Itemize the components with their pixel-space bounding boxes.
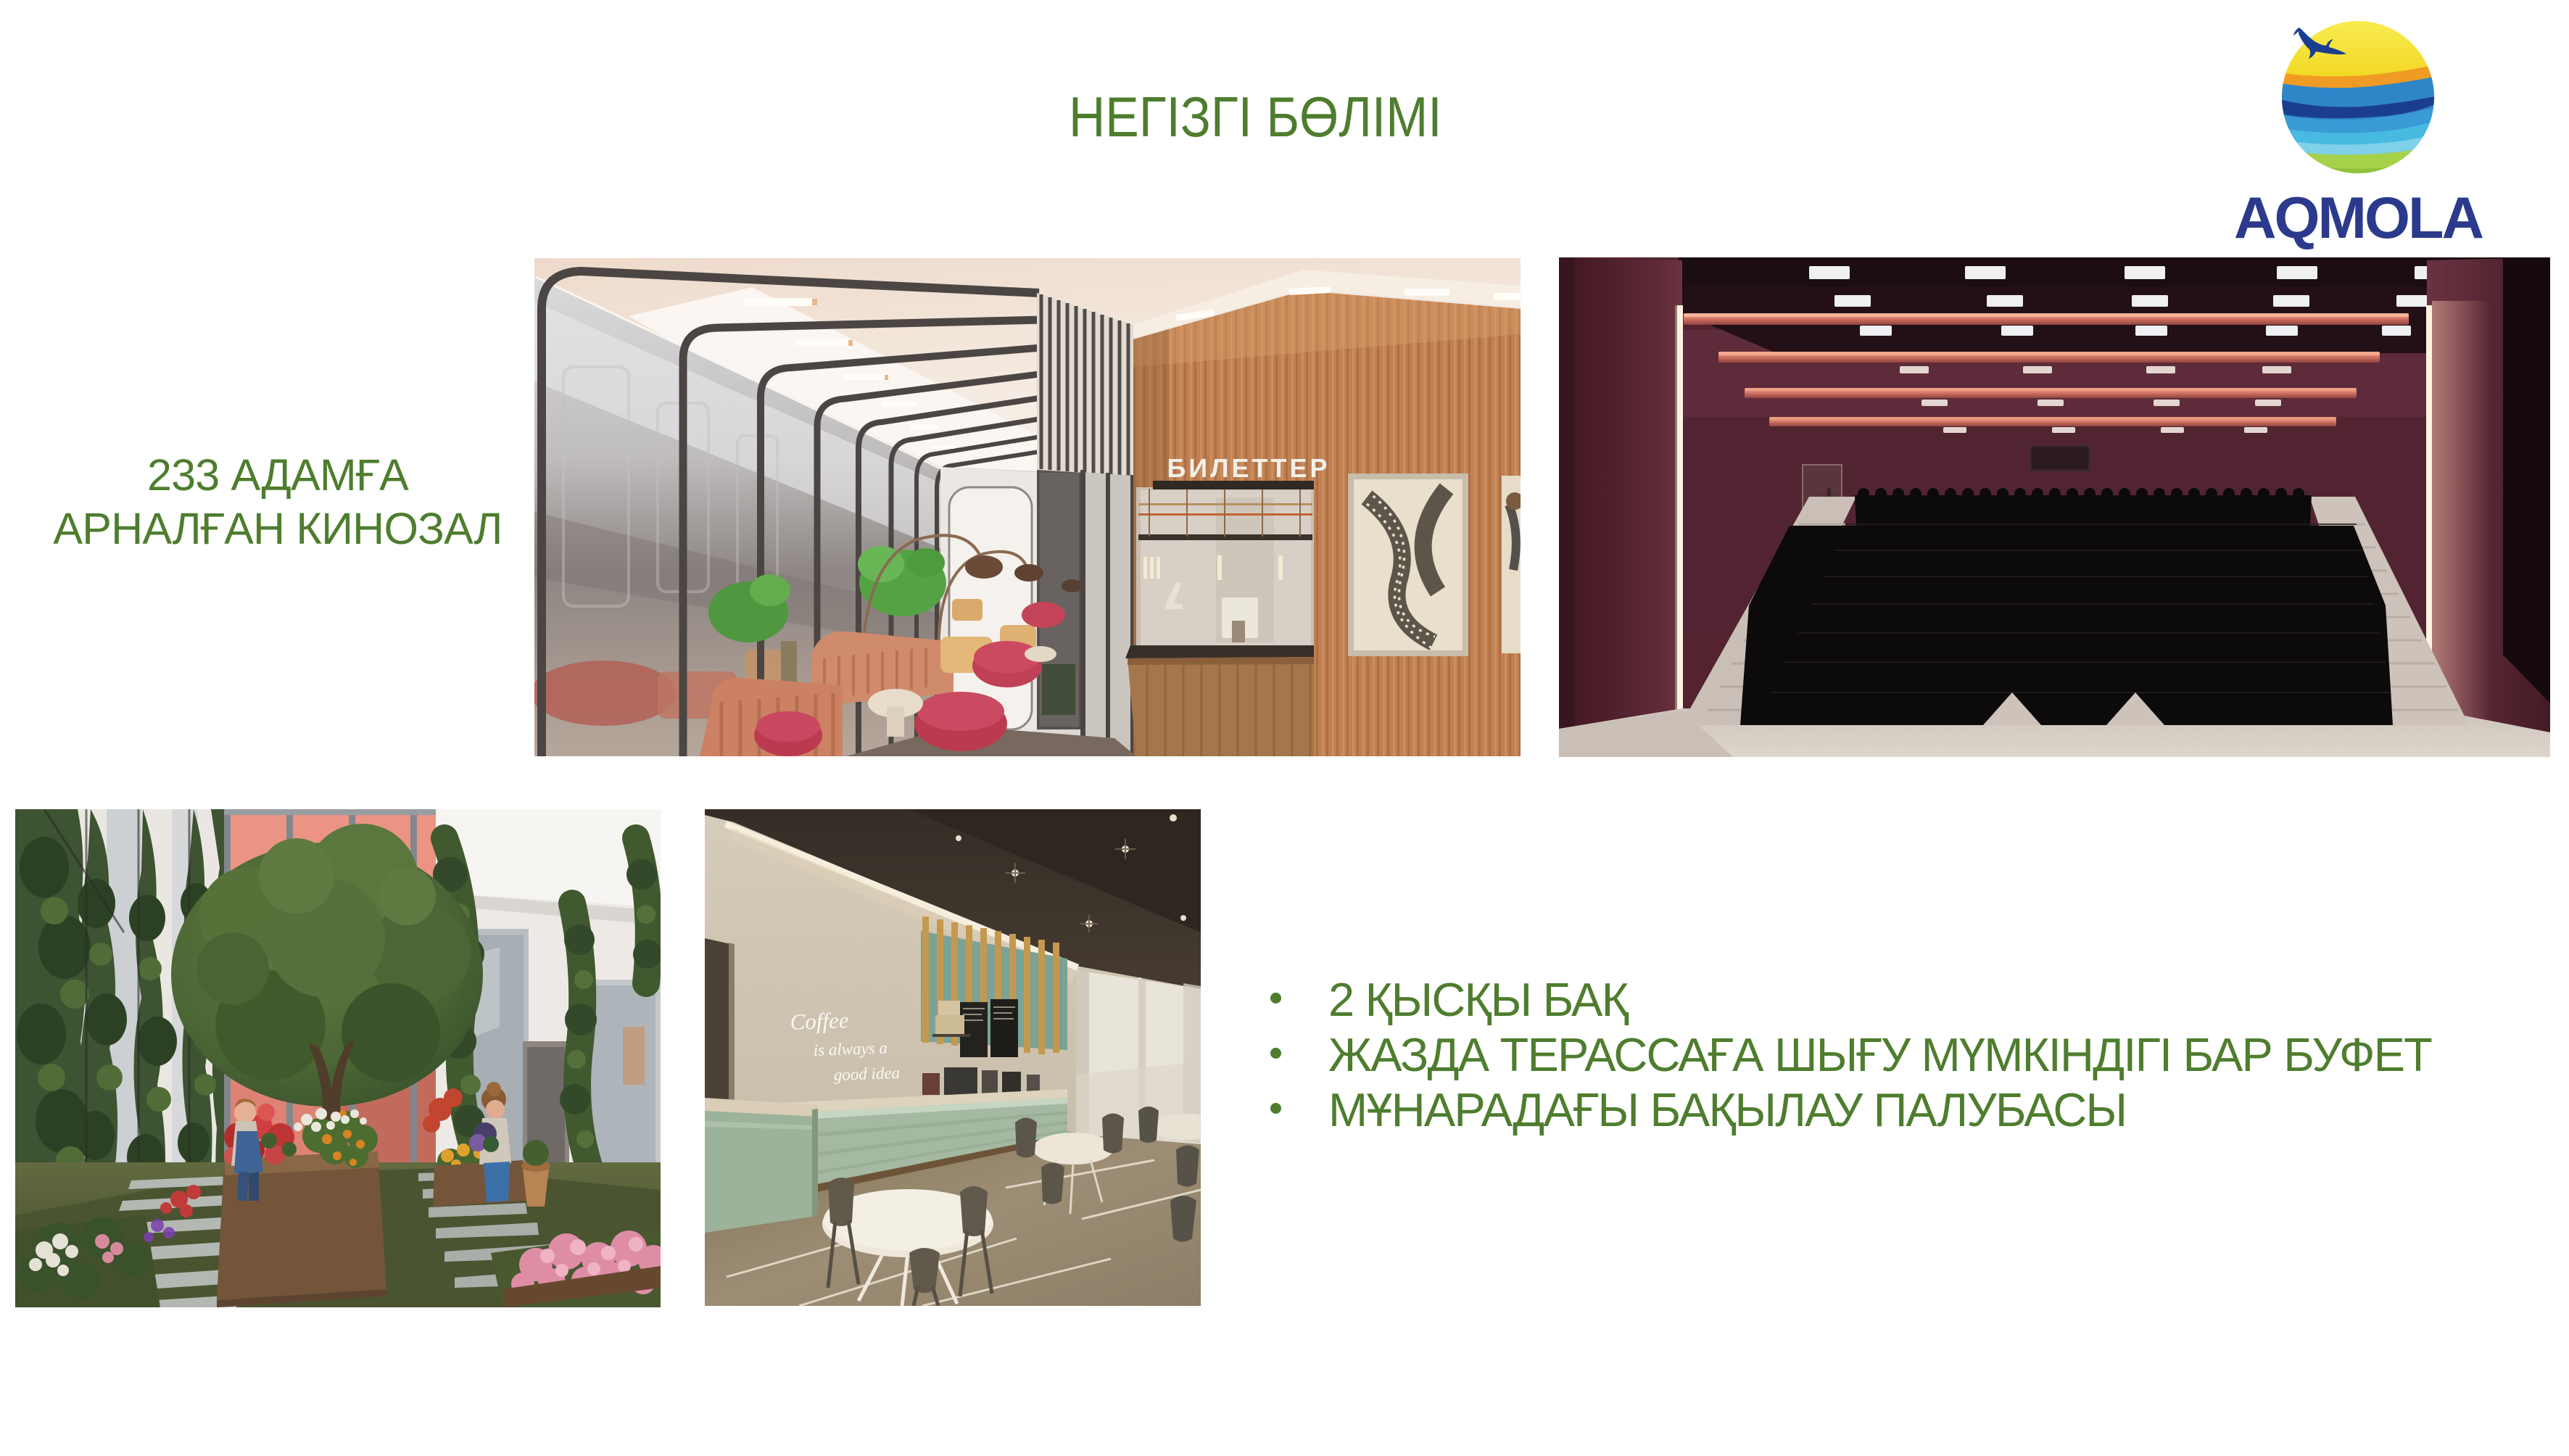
svg-text:AQMOLA: AQMOLA [2234, 186, 2483, 250]
svg-text:good idea: good idea [833, 1064, 900, 1084]
svg-text:is always a: is always a [813, 1038, 888, 1059]
svg-text:БИЛЕТТЕР: БИЛЕТТЕР [1167, 453, 1330, 483]
svg-text:Coffee: Coffee [790, 1007, 849, 1035]
